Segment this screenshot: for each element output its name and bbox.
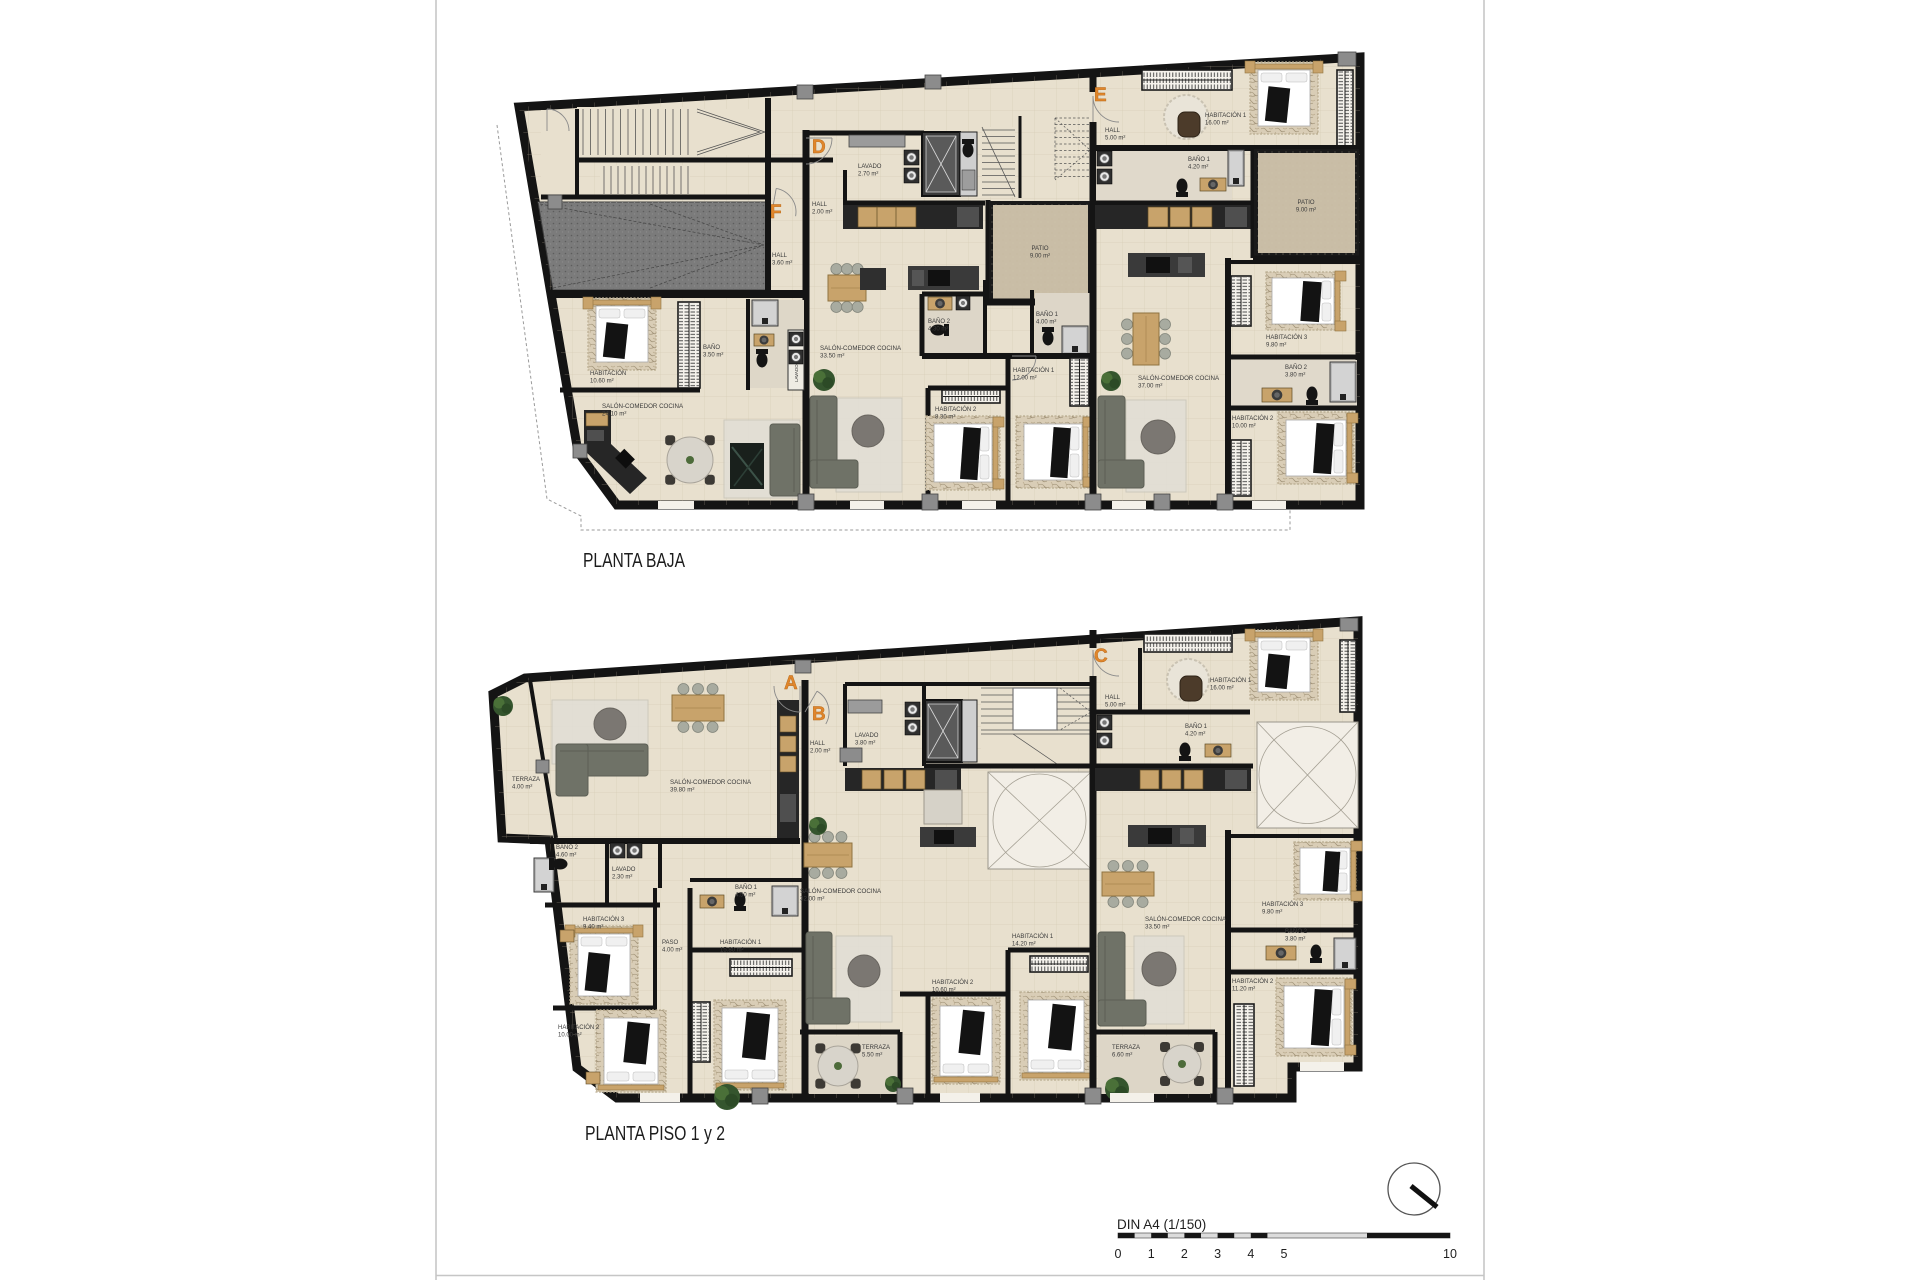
svg-text:3: 3 xyxy=(1214,1247,1221,1261)
svg-text:D: D xyxy=(812,137,826,158)
svg-text:PATIO9.00 m²: PATIO9.00 m² xyxy=(1030,246,1050,260)
svg-text:LAVADO3.80 m²: LAVADO3.80 m² xyxy=(855,733,879,747)
svg-text:LAVADO: LAVADO xyxy=(794,364,799,382)
svg-text:PLANTA BAJA: PLANTA BAJA xyxy=(583,549,685,572)
svg-text:C: C xyxy=(1094,646,1108,667)
svg-text:4: 4 xyxy=(1247,1247,1254,1261)
svg-text:LAVADO2.70 m²: LAVADO2.70 m² xyxy=(858,164,882,178)
svg-text:E: E xyxy=(1094,85,1107,106)
svg-text:DIN A4 (1/150): DIN A4 (1/150) xyxy=(1117,1217,1206,1232)
svg-text:10: 10 xyxy=(1443,1247,1457,1261)
svg-text:0: 0 xyxy=(1115,1247,1122,1261)
svg-text:1: 1 xyxy=(1148,1247,1155,1261)
svg-text:F: F xyxy=(770,202,782,223)
svg-text:LAVADO2.30 m²: LAVADO2.30 m² xyxy=(612,867,636,881)
svg-text:PLANTA PISO 1 y 2: PLANTA PISO 1 y 2 xyxy=(585,1123,725,1145)
svg-text:A: A xyxy=(784,673,798,694)
svg-text:PATIO9.00 m²: PATIO9.00 m² xyxy=(1296,200,1316,214)
svg-text:2: 2 xyxy=(1181,1247,1188,1261)
svg-text:B: B xyxy=(812,704,826,725)
svg-text:5: 5 xyxy=(1281,1247,1288,1261)
